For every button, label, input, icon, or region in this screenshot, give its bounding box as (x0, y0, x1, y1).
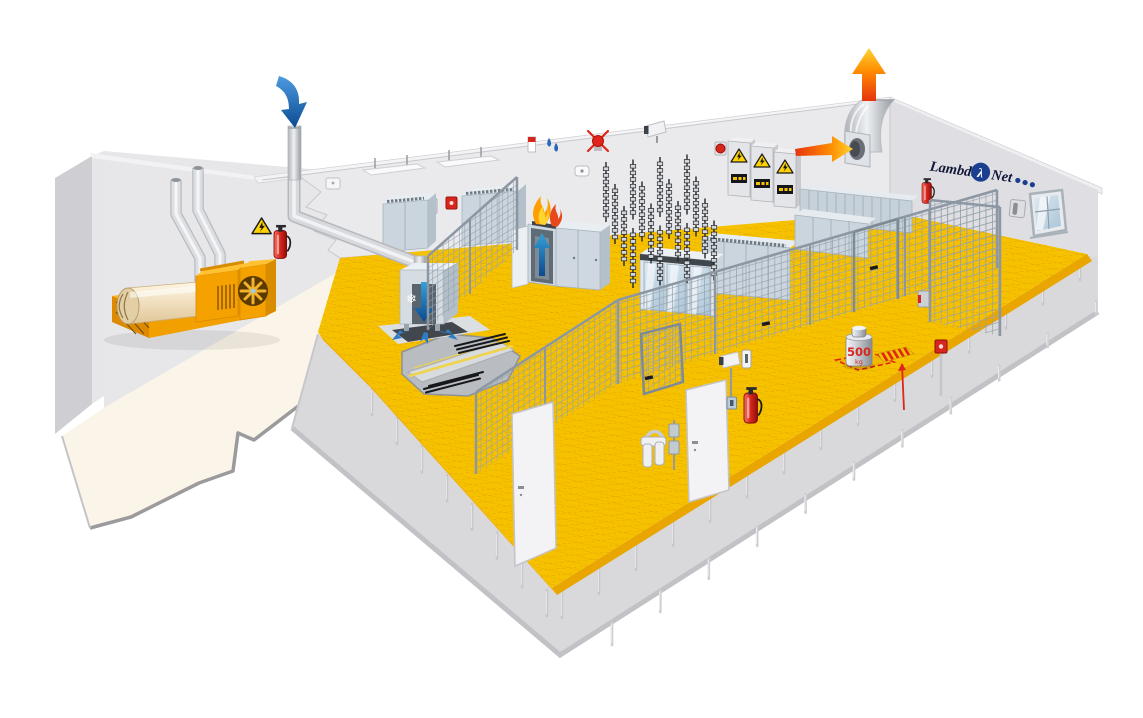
generator-alternator (117, 282, 198, 324)
illustration-canvas: Lambda λ Net (0, 0, 1143, 718)
alarm-box (446, 197, 457, 209)
wall-phone-icon (1009, 199, 1026, 217)
door-switch (727, 397, 737, 409)
snowflake-icon: ❄ (406, 292, 417, 307)
cold-air-intake-arrow (276, 76, 307, 128)
smoke-detector-icon (575, 166, 589, 176)
generator-shadow (104, 330, 280, 350)
door-handle (518, 486, 524, 489)
gate-card-reader (742, 350, 751, 368)
fence-gate-b (641, 324, 683, 394)
emergency-button-icon (715, 142, 726, 155)
scene-svg: Lambda λ Net (0, 0, 1143, 718)
info-sign (528, 137, 536, 152)
hot-air-exhaust-arrow (852, 48, 886, 101)
generator-room-outer-wall (55, 156, 92, 434)
power-panel (774, 148, 801, 208)
fan-hub (251, 289, 256, 294)
intake-duct (288, 126, 301, 180)
fence-d (930, 200, 1000, 336)
observation-window (1030, 190, 1068, 238)
weight-value-label: 500 (847, 345, 871, 359)
door-1 (512, 402, 556, 566)
door-2 (686, 380, 729, 502)
weight-unit-label: kg (855, 358, 863, 366)
edge-panel (918, 291, 929, 307)
generator-room-wall-edge (92, 151, 104, 404)
logo-text-net: Net (989, 167, 1014, 186)
door-handle (692, 441, 698, 444)
rack-row-1 (383, 193, 436, 252)
